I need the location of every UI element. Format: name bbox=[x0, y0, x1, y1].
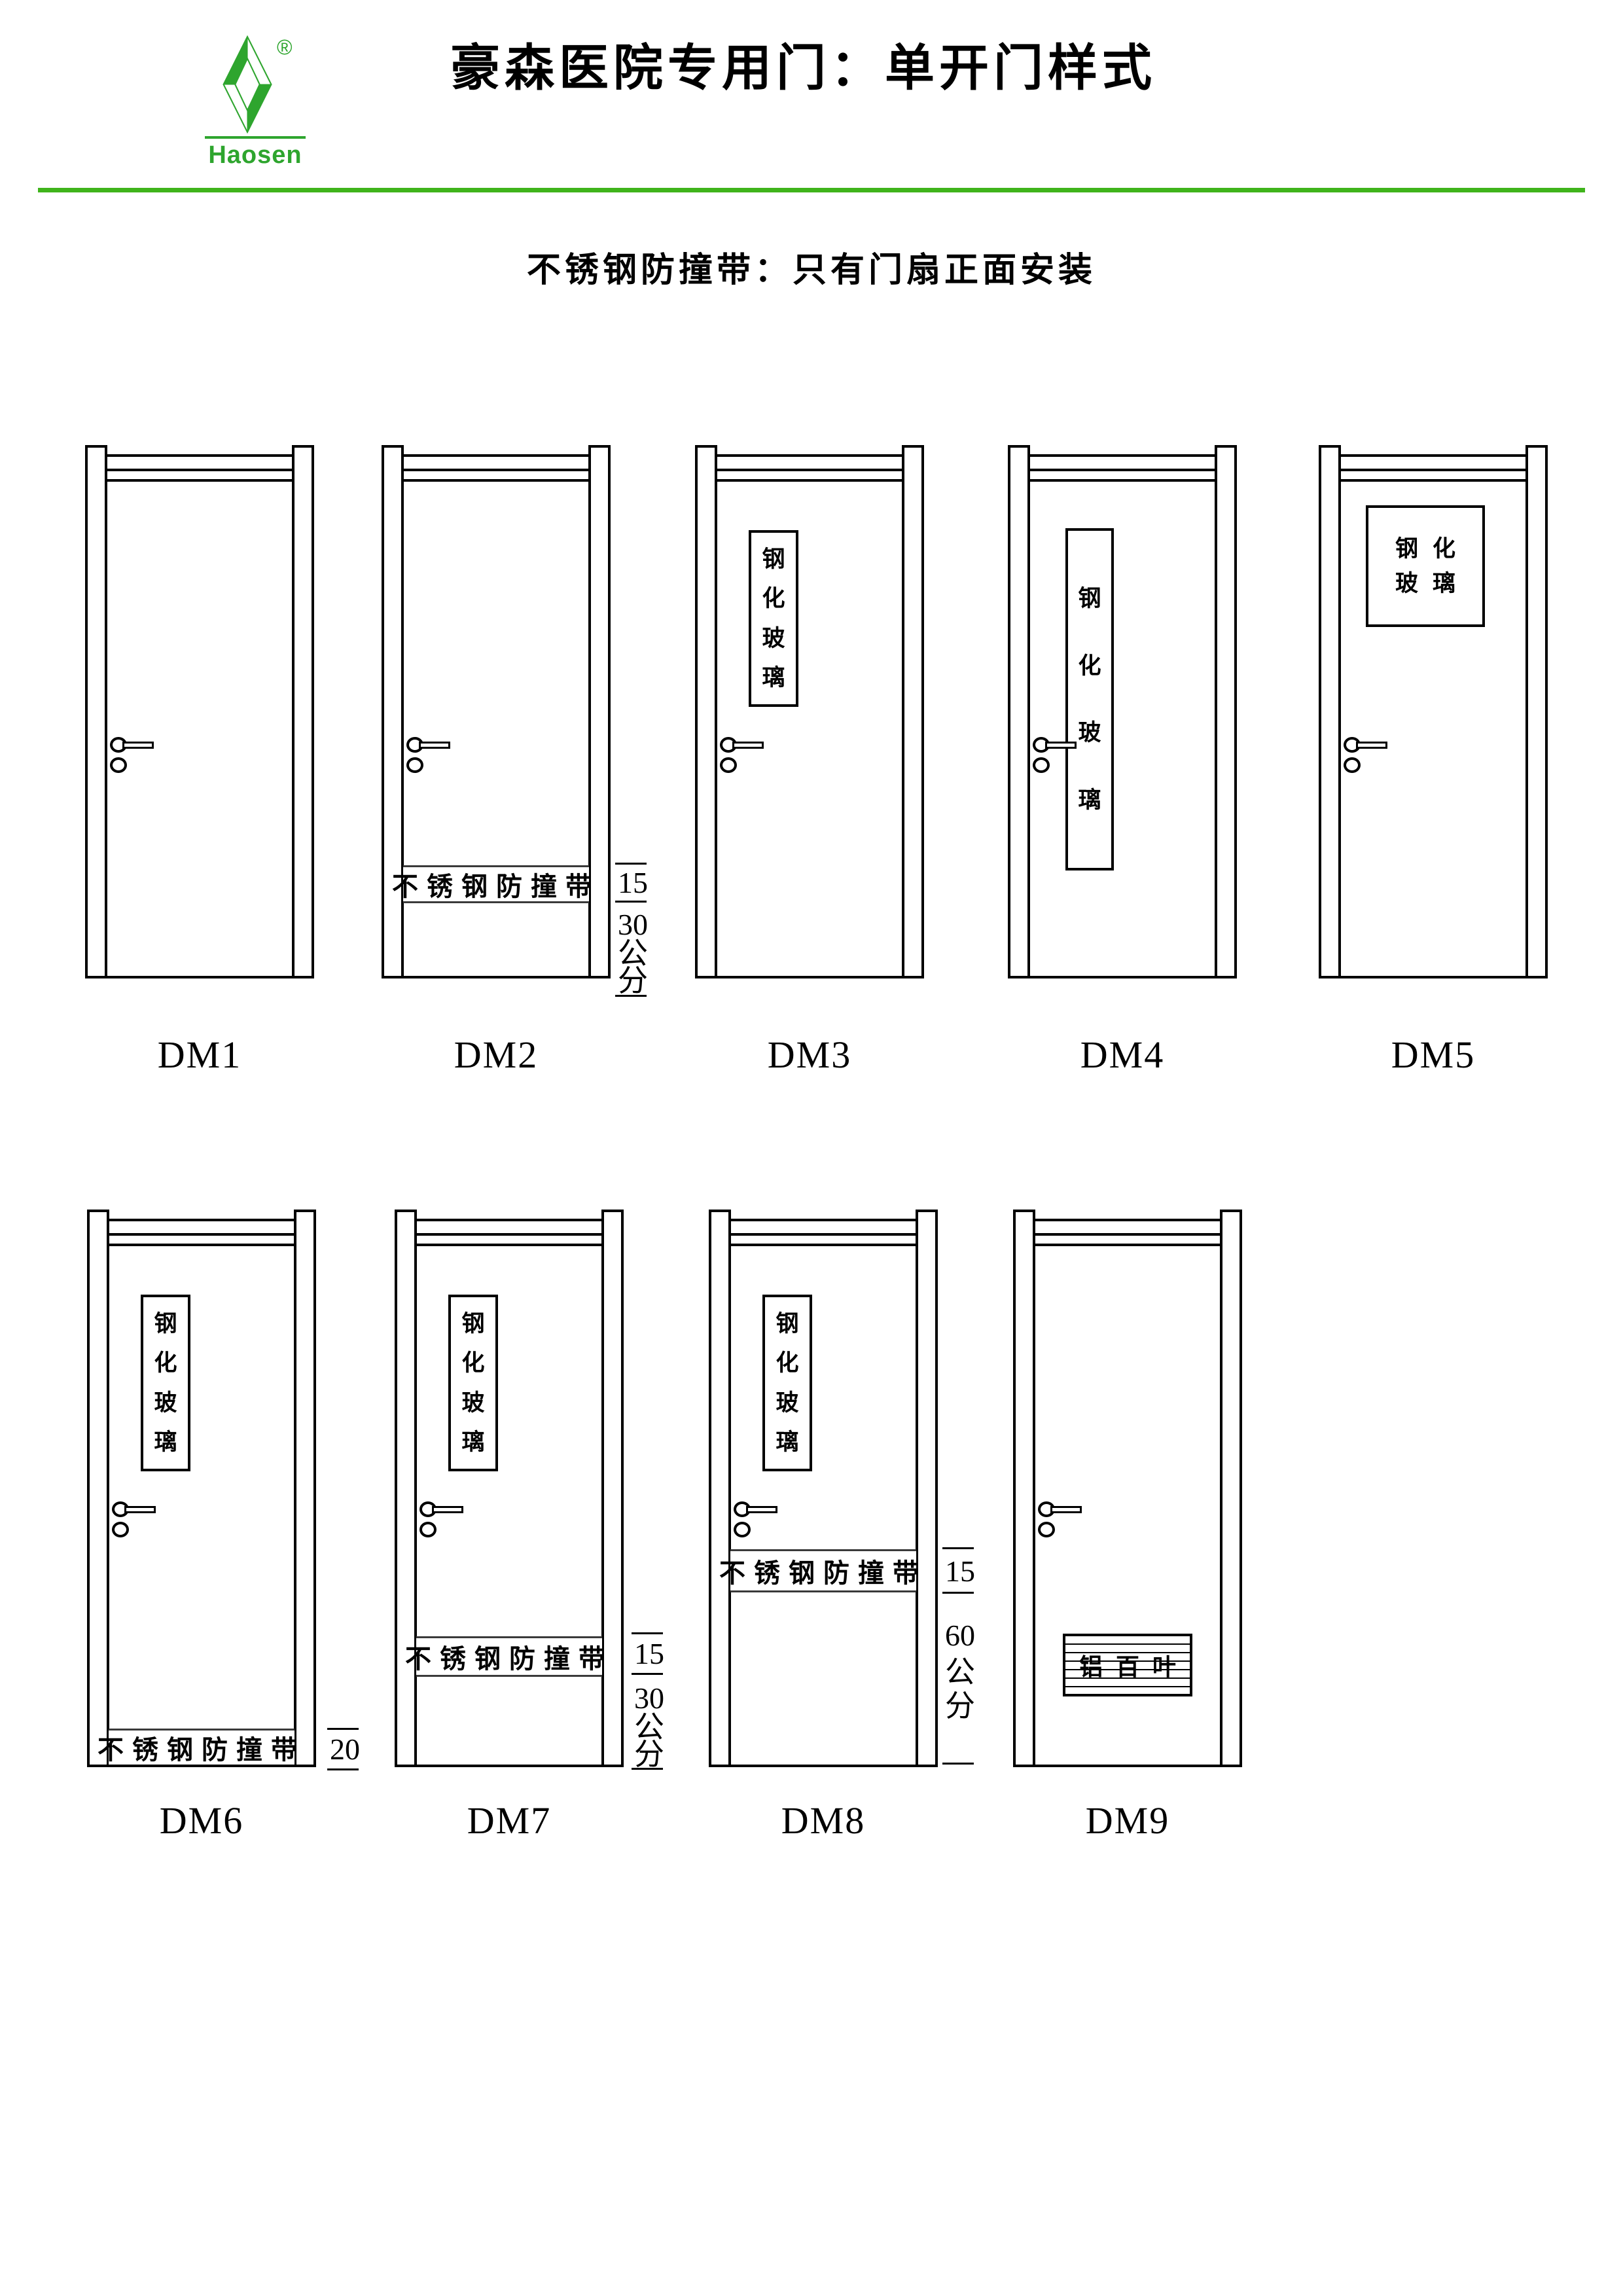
door-dm3: 钢 化 玻 璃 bbox=[695, 445, 924, 978]
door-dm4: 钢 化 玻 璃 bbox=[1008, 445, 1237, 978]
frame-left-post bbox=[695, 445, 717, 978]
door-caption: DM9 bbox=[1013, 1799, 1242, 1842]
frame-left-post bbox=[1319, 445, 1341, 978]
door-handle-icon bbox=[1038, 1501, 1085, 1539]
door-caption: DM2 bbox=[382, 1033, 611, 1077]
door-leaf: 钢化 玻璃 bbox=[1338, 479, 1528, 978]
bumper-strip: 不锈钢防撞带 bbox=[109, 1729, 294, 1765]
door-handle-icon bbox=[1344, 737, 1391, 775]
dimension-annotation-dm8: 15 60 公 分 bbox=[942, 1547, 982, 1765]
tempered-glass-window: 钢化 玻璃 bbox=[1366, 505, 1485, 627]
dimension-tick bbox=[615, 901, 647, 903]
door-handle-icon bbox=[419, 1501, 467, 1539]
door-handle-icon bbox=[720, 737, 767, 775]
frame-right-post bbox=[1220, 1210, 1242, 1767]
registered-trademark-icon: ® bbox=[277, 35, 293, 60]
catalog-page: ® Haosen 豪森医院专用门：单开门样式 不锈钢防撞带：只有门扇正面安装 不… bbox=[0, 0, 1623, 2296]
door-leaf bbox=[105, 479, 294, 978]
door-dm2: 不锈钢防撞带 bbox=[382, 445, 611, 978]
door-caption: DM3 bbox=[695, 1033, 924, 1077]
logo-underline bbox=[205, 136, 306, 139]
frame-right-post bbox=[902, 445, 924, 978]
tempered-glass-window: 钢 化 玻 璃 bbox=[762, 1295, 812, 1471]
door-caption: DM1 bbox=[85, 1033, 314, 1077]
frame-right-post bbox=[294, 1210, 316, 1767]
door-leaf: 铝百叶 bbox=[1033, 1244, 1222, 1767]
door-handle-icon bbox=[1033, 737, 1080, 775]
brand-name: Haosen bbox=[193, 141, 317, 170]
frame-left-post bbox=[395, 1210, 417, 1767]
frame-right-post bbox=[601, 1210, 624, 1767]
tempered-glass-window: 钢 化 玻 璃 bbox=[749, 530, 798, 707]
frame-lintel bbox=[1033, 1219, 1222, 1236]
haosen-logo: ® Haosen bbox=[193, 26, 317, 167]
door-dm7: 钢 化 玻 璃 不锈钢防撞带 bbox=[395, 1210, 624, 1767]
door-handle-icon bbox=[112, 1501, 159, 1539]
frame-lintel bbox=[105, 454, 294, 471]
frame-lintel bbox=[1338, 454, 1528, 471]
bumper-strip: 不锈钢防撞带 bbox=[730, 1549, 916, 1592]
door-dm1 bbox=[85, 445, 314, 978]
door-dm5: 钢化 玻璃 bbox=[1319, 445, 1548, 978]
frame-right-post bbox=[1525, 445, 1548, 978]
dimension-tick bbox=[632, 1768, 663, 1770]
door-handle-icon bbox=[734, 1501, 781, 1539]
frame-lintel bbox=[107, 1219, 296, 1236]
frame-right-post bbox=[292, 445, 314, 978]
page-subtitle: 不锈钢防撞带：只有门扇正面安装 bbox=[0, 242, 1623, 291]
tempered-glass-window: 钢 化 玻 璃 bbox=[1065, 528, 1114, 870]
door-dm8: 钢 化 玻 璃 不锈钢防撞带 bbox=[709, 1210, 938, 1767]
diamond-logo-icon bbox=[211, 35, 283, 134]
bumper-strip: 不锈钢防撞带 bbox=[403, 865, 589, 903]
tempered-glass-window: 钢 化 玻 璃 bbox=[141, 1295, 190, 1471]
frame-left-post bbox=[1013, 1210, 1035, 1767]
door-leaf: 钢 化 玻 璃 不锈钢防撞带 bbox=[107, 1244, 296, 1767]
frame-right-post bbox=[916, 1210, 938, 1767]
frame-lintel bbox=[414, 1219, 604, 1236]
frame-lintel bbox=[728, 1219, 918, 1236]
frame-lintel bbox=[1027, 454, 1217, 471]
dimension-tick bbox=[615, 995, 647, 997]
door-leaf: 钢 化 玻 璃 bbox=[1027, 479, 1217, 978]
dimension-tick bbox=[942, 1763, 974, 1765]
door-caption: DM6 bbox=[87, 1799, 316, 1842]
bumper-strip: 不锈钢防撞带 bbox=[416, 1636, 602, 1677]
door-caption: DM5 bbox=[1319, 1033, 1548, 1077]
frame-lintel bbox=[401, 454, 591, 471]
frame-left-post bbox=[85, 445, 107, 978]
frame-left-post bbox=[1008, 445, 1030, 978]
tempered-glass-window: 钢 化 玻 璃 bbox=[448, 1295, 498, 1471]
dimension-tick bbox=[632, 1632, 663, 1634]
door-caption: DM7 bbox=[395, 1799, 624, 1842]
door-caption: DM8 bbox=[709, 1799, 938, 1842]
dimension-tick bbox=[632, 1673, 663, 1675]
door-leaf: 钢 化 玻 璃 不锈钢防撞带 bbox=[728, 1244, 918, 1767]
dimension-tick bbox=[327, 1728, 359, 1730]
door-handle-icon bbox=[110, 737, 157, 775]
door-leaf: 钢 化 玻 璃 bbox=[715, 479, 904, 978]
door-dm6: 钢 化 玻 璃 不锈钢防撞带 bbox=[87, 1210, 316, 1767]
page-title: 豪森医院专用门：单开门样式 bbox=[450, 27, 1156, 99]
dimension-tick bbox=[615, 863, 647, 865]
louver-panel: 铝百叶 bbox=[1063, 1634, 1192, 1696]
door-leaf: 钢 化 玻 璃 不锈钢防撞带 bbox=[414, 1244, 604, 1767]
frame-right-post bbox=[1215, 445, 1237, 978]
dimension-tick bbox=[942, 1592, 974, 1594]
frame-left-post bbox=[709, 1210, 731, 1767]
door-handle-icon bbox=[406, 737, 454, 775]
door-dm9: 铝百叶 bbox=[1013, 1210, 1242, 1767]
dimension-annotation-dm7: 15 30 公 分 bbox=[632, 1632, 671, 1770]
header-divider bbox=[38, 188, 1585, 192]
dimension-tick bbox=[327, 1768, 359, 1770]
door-caption: DM4 bbox=[1008, 1033, 1237, 1077]
door-leaf: 不锈钢防撞带 bbox=[401, 479, 591, 978]
frame-left-post bbox=[87, 1210, 109, 1767]
frame-lintel bbox=[715, 454, 904, 471]
dimension-tick bbox=[942, 1547, 974, 1549]
dimension-annotation-dm6: 20 bbox=[327, 1728, 366, 1771]
dimension-annotation-dm2: 15 30 公 分 bbox=[615, 863, 654, 997]
